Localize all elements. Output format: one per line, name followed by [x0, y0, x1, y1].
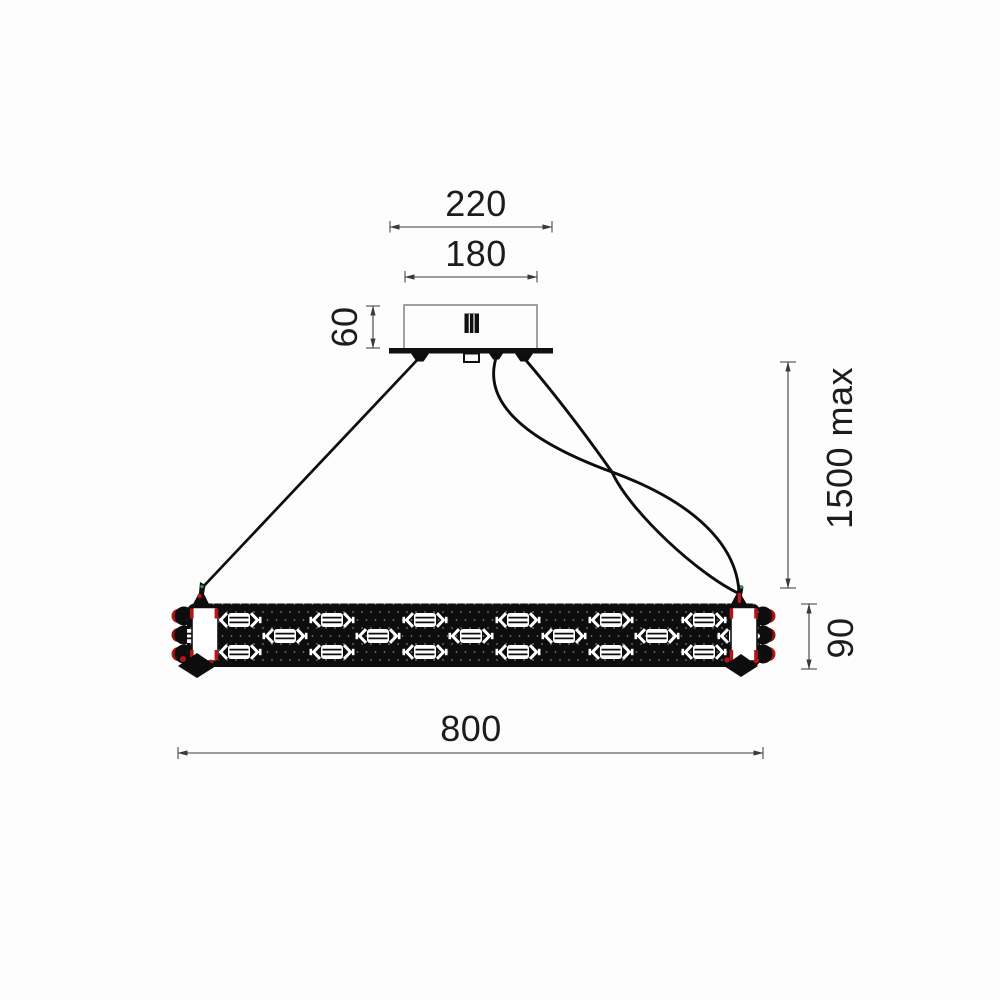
dim-label-90: 90	[820, 617, 861, 658]
suspension-wire-right	[524, 358, 740, 594]
wire-connector-left	[192, 582, 210, 606]
wire-foot-right	[515, 354, 533, 362]
cable-gland	[465, 314, 480, 334]
dimension-800: 800	[178, 708, 763, 759]
fixture-bar	[170, 582, 776, 678]
dim-label-1500: 1500 max	[819, 367, 860, 529]
end-cap-left	[192, 608, 218, 662]
dim-label-60: 60	[324, 306, 365, 347]
chandelier-drawing: 220 180 60 1500 max 90 800	[0, 0, 1000, 1000]
dim-label-180: 180	[445, 233, 507, 274]
canopy-assembly	[389, 305, 553, 362]
dimension-drawing-canvas: 220 180 60 1500 max 90 800	[0, 0, 1000, 1000]
dimension-1500-max: 1500 max	[780, 362, 860, 588]
end-cap-right	[731, 608, 757, 662]
wire-connector-right	[730, 584, 748, 606]
dim-label-800: 800	[440, 708, 502, 749]
dimension-220: 220	[390, 183, 552, 233]
mounting-nut	[464, 354, 479, 363]
dim-label-220: 220	[445, 183, 507, 224]
suspension-wires	[201, 354, 740, 595]
dimension-180: 180	[405, 233, 537, 283]
dimension-90: 90	[801, 604, 861, 669]
suspension-wire-left	[201, 357, 420, 589]
power-cord	[494, 358, 739, 593]
dimension-60: 60	[324, 306, 380, 348]
